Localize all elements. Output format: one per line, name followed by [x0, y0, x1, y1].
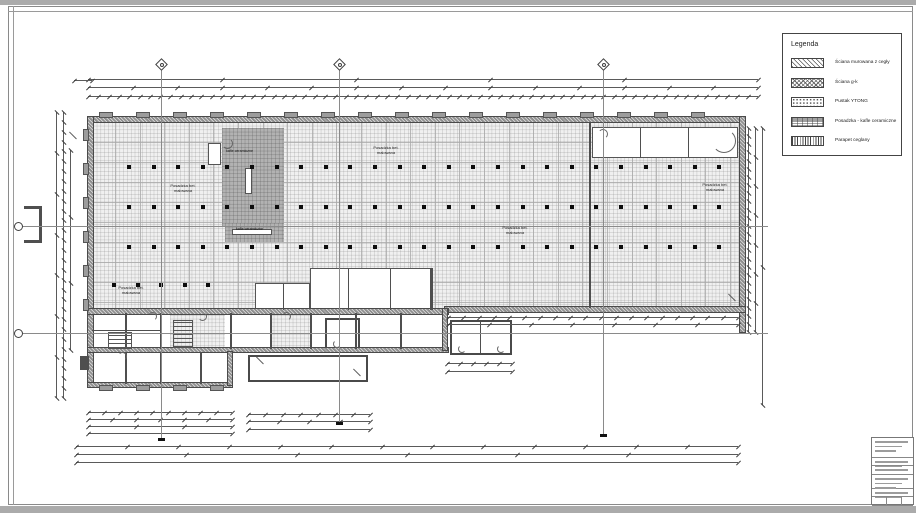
axis-line-endcap: [600, 434, 607, 437]
grid-line-v: [533, 122, 534, 308]
column: [496, 245, 500, 249]
pilaster-bump: [84, 266, 88, 276]
pilaster-bump: [174, 386, 186, 390]
pilaster-bump: [359, 113, 371, 117]
legend-item: Pustak YTONG: [791, 97, 893, 109]
column: [299, 165, 303, 169]
sheet-frame-line: [8, 11, 913, 12]
column: [668, 165, 672, 169]
column: [619, 205, 623, 209]
room: [92, 312, 445, 352]
pilaster-bump: [137, 386, 149, 390]
dimension-row: [74, 80, 92, 81]
column: [127, 165, 131, 169]
column: [471, 205, 475, 209]
column: [644, 245, 648, 249]
column: [717, 165, 721, 169]
pilaster-bump: [84, 130, 88, 140]
pat-diag-swatch: [791, 58, 824, 68]
title-block-text-bar: [875, 446, 902, 448]
axis-line-horizontal: [23, 226, 768, 227]
column: [206, 283, 210, 287]
pilaster-bump: [84, 232, 88, 242]
title-block-section: [872, 438, 913, 458]
column: [496, 205, 500, 209]
ceramic-tile-label: kafle ceramiczne: [236, 227, 282, 232]
column: [717, 245, 721, 249]
grid-line-v: [435, 122, 436, 308]
pilaster-bump: [692, 113, 704, 117]
column: [201, 245, 205, 249]
pat-cross-swatch: [791, 78, 824, 88]
partition-wall: [230, 313, 232, 349]
pat-vert-swatch: [791, 136, 824, 146]
dimension-column: [748, 128, 749, 332]
drawing-sheet: Posadzka bet. malowanaPosadzka bet. malo…: [0, 0, 916, 513]
floor-finish-label: Posadzka bet. malowana: [695, 183, 735, 193]
pilaster-bump: [544, 113, 556, 117]
column: [594, 165, 598, 169]
column: [398, 165, 402, 169]
pilaster-bump: [174, 113, 186, 117]
floor-finish-label: Posadzka bet. malowana: [366, 146, 406, 156]
partition-wall: [390, 269, 391, 310]
title-block-cell: [886, 497, 900, 505]
room: [592, 127, 738, 158]
partition-wall: [355, 313, 357, 349]
axis-line-vertical: [339, 70, 340, 422]
column: [324, 165, 328, 169]
column: [348, 245, 352, 249]
column: [373, 165, 377, 169]
column: [570, 245, 574, 249]
column: [422, 245, 426, 249]
legend-item: Ściana g-k: [791, 78, 893, 90]
grid-line-v: [140, 122, 141, 308]
dimension-row: [88, 433, 232, 434]
pilaster-bump: [84, 198, 88, 208]
pilaster-bump: [211, 113, 223, 117]
legend-item: Posadzka - kafle ceramiczne: [791, 117, 893, 129]
page-edge-strip: [0, 506, 916, 513]
column: [422, 165, 426, 169]
column: [176, 245, 180, 249]
legend-item-label: Parapet ceglany: [835, 138, 870, 143]
pilaster-bump: [248, 113, 260, 117]
legend-item-label: Pustak YTONG: [835, 99, 868, 104]
column: [521, 205, 525, 209]
grid-line-v: [287, 122, 288, 308]
partition-wall: [200, 352, 202, 384]
grid-line-v: [509, 122, 510, 308]
column: [570, 205, 574, 209]
column: [594, 245, 598, 249]
title-block-text-bar: [875, 478, 908, 480]
axis-marker-dot: [338, 63, 342, 67]
column: [225, 205, 229, 209]
column: [644, 165, 648, 169]
pilaster-bump: [137, 113, 149, 117]
grid-line-v: [164, 122, 165, 308]
wall-segment: [88, 117, 740, 122]
column: [545, 245, 549, 249]
pilaster-bump: [433, 113, 445, 117]
axis-line-vertical: [603, 70, 604, 434]
stair-flight: [108, 332, 132, 349]
grid-line-h: [93, 242, 740, 243]
grid-line-v: [115, 122, 116, 308]
column: [348, 165, 352, 169]
dimension-column: [63, 112, 64, 398]
axis-line-endcap: [336, 422, 343, 425]
grid-line-v: [558, 122, 559, 308]
dimension-row: [88, 96, 758, 97]
column: [299, 245, 303, 249]
wall-segment: [88, 309, 448, 314]
dimension-row: [76, 462, 738, 463]
title-block-cell: [901, 497, 915, 505]
column: [225, 165, 229, 169]
grid-line-v: [484, 122, 485, 308]
title-block-section: [872, 466, 913, 475]
pat-stipple-swatch: [791, 97, 824, 107]
grid-line-h: [93, 162, 740, 163]
wall-segment: [445, 307, 745, 312]
legend-item-label: Ściana g-k: [835, 80, 858, 85]
axis-marker-circle: [14, 222, 23, 231]
pilaster-bump: [322, 113, 334, 117]
partition-wall: [400, 313, 402, 349]
partition-wall: [80, 356, 89, 370]
wall-segment: [88, 117, 93, 387]
column: [176, 165, 180, 169]
room: [208, 143, 221, 165]
title-block: [871, 437, 914, 505]
column: [422, 205, 426, 209]
column: [521, 165, 525, 169]
legend-item: Parapet ceglany: [791, 136, 893, 148]
column: [152, 205, 156, 209]
wall-segment: [88, 348, 448, 352]
column: [545, 165, 549, 169]
partition-wall: [270, 313, 272, 349]
title-block-section: [872, 497, 913, 506]
dimension-row: [88, 79, 758, 80]
column: [250, 205, 254, 209]
dimension-row: [88, 412, 232, 413]
column: [570, 165, 574, 169]
floor-plan: Posadzka bet. malowanaPosadzka bet. malo…: [0, 0, 916, 513]
column: [619, 165, 623, 169]
grid-line-h: [93, 222, 740, 223]
column: [275, 205, 279, 209]
pilaster-bump: [211, 386, 223, 390]
title-block-section: [872, 489, 913, 497]
column: [373, 205, 377, 209]
column: [545, 205, 549, 209]
dimension-row: [447, 363, 512, 364]
room: [248, 355, 368, 382]
column: [201, 165, 205, 169]
column: [693, 205, 697, 209]
title-block-section: [872, 458, 913, 466]
stair-flight: [173, 320, 193, 348]
column: [152, 165, 156, 169]
dimension-row: [76, 446, 738, 447]
title-block-text-bar: [875, 461, 908, 463]
wall-segment: [228, 352, 232, 385]
column: [373, 245, 377, 249]
partition-wall: [688, 128, 689, 158]
column: [127, 205, 131, 209]
floor-finish-label: Posadzka bet. malowana: [495, 226, 535, 236]
page-edge-strip: [0, 0, 916, 5]
title-block-text-bar: [875, 441, 908, 443]
axis-line-endcap: [158, 438, 165, 441]
axis-marker-dot: [160, 63, 164, 67]
column: [225, 245, 229, 249]
legend: Legenda Ściana murowana z cegłyŚciana g-…: [782, 33, 902, 156]
title-block-text-bar: [875, 492, 908, 494]
column: [521, 245, 525, 249]
column: [693, 245, 697, 249]
ceramic-tile-label: kafle ceramiczne: [226, 149, 272, 154]
column: [668, 205, 672, 209]
column: [644, 205, 648, 209]
title-block-text-bar: [875, 483, 902, 485]
partition-wall: [310, 313, 312, 349]
column: [152, 245, 156, 249]
title-block-section: [872, 475, 913, 489]
partition-wall: [24, 240, 42, 243]
wall-segment: [443, 309, 447, 350]
column: [275, 165, 279, 169]
column: [471, 165, 475, 169]
sheet-frame-line: [13, 6, 14, 505]
grid-line-h: [93, 202, 740, 203]
axis-marker-circle: [14, 329, 23, 338]
column: [201, 205, 205, 209]
room: [480, 322, 481, 353]
column: [594, 205, 598, 209]
grid-line-h: [93, 262, 740, 263]
column: [176, 205, 180, 209]
pilaster-bump: [581, 113, 593, 117]
room: [245, 168, 252, 194]
pilaster-bump: [84, 164, 88, 174]
pilaster-bump: [507, 113, 519, 117]
column: [250, 245, 254, 249]
column: [668, 245, 672, 249]
partition-wall: [283, 284, 284, 310]
dimension-row: [248, 429, 370, 430]
dimension-column: [70, 150, 71, 350]
partition-wall: [39, 206, 42, 243]
column: [348, 205, 352, 209]
pilaster-bump: [285, 113, 297, 117]
column: [127, 245, 131, 249]
column: [496, 165, 500, 169]
title-block-text-bar: [875, 469, 908, 471]
room: [310, 268, 432, 312]
grid-line-v: [189, 122, 190, 308]
column: [693, 165, 697, 169]
pilaster-bump: [100, 386, 112, 390]
column: [324, 205, 328, 209]
axis-marker-dot: [602, 63, 606, 67]
column: [324, 245, 328, 249]
partition-wall: [589, 122, 591, 308]
pilaster-bump: [655, 113, 667, 117]
column: [250, 165, 254, 169]
dimension-row: [88, 426, 232, 427]
grid-line-v: [459, 122, 460, 308]
wall-segment: [740, 117, 745, 332]
pilaster-bump: [396, 113, 408, 117]
column: [398, 245, 402, 249]
floor-finish-label: Posadzka bet. malowana: [111, 286, 151, 296]
column: [447, 205, 451, 209]
legend-item: Ściana murowana z cegły: [791, 58, 893, 70]
legend-item-label: Ściana murowana z cegły: [835, 60, 890, 65]
dimension-row: [448, 324, 738, 325]
legend-item-label: Posadzka - kafle ceramiczne: [835, 119, 896, 124]
column: [398, 205, 402, 209]
column: [275, 245, 279, 249]
dimension-row: [448, 317, 738, 318]
title-block-text-bar: [875, 450, 896, 452]
pat-floor-swatch: [791, 117, 824, 127]
column: [183, 283, 187, 287]
partition-wall: [92, 330, 162, 331]
dimension-row: [447, 371, 512, 372]
axis-line-horizontal: [23, 333, 768, 334]
column: [447, 165, 451, 169]
column: [447, 245, 451, 249]
pilaster-bump: [100, 113, 112, 117]
partition-wall: [348, 269, 349, 310]
axis-line-vertical: [161, 70, 162, 438]
column: [619, 245, 623, 249]
grid-line-v: [582, 122, 583, 308]
column: [299, 205, 303, 209]
floor-finish-label: Posadzka bet. malowana: [163, 184, 203, 194]
column: [471, 245, 475, 249]
pilaster-bump: [84, 300, 88, 310]
partition-wall: [640, 128, 641, 158]
pilaster-bump: [470, 113, 482, 117]
pilaster-bump: [618, 113, 630, 117]
partition-wall: [430, 268, 433, 310]
column: [717, 205, 721, 209]
legend-rows: Ściana murowana z cegłyŚciana g-kPustak …: [783, 34, 901, 155]
dimension-row: [88, 87, 758, 88]
